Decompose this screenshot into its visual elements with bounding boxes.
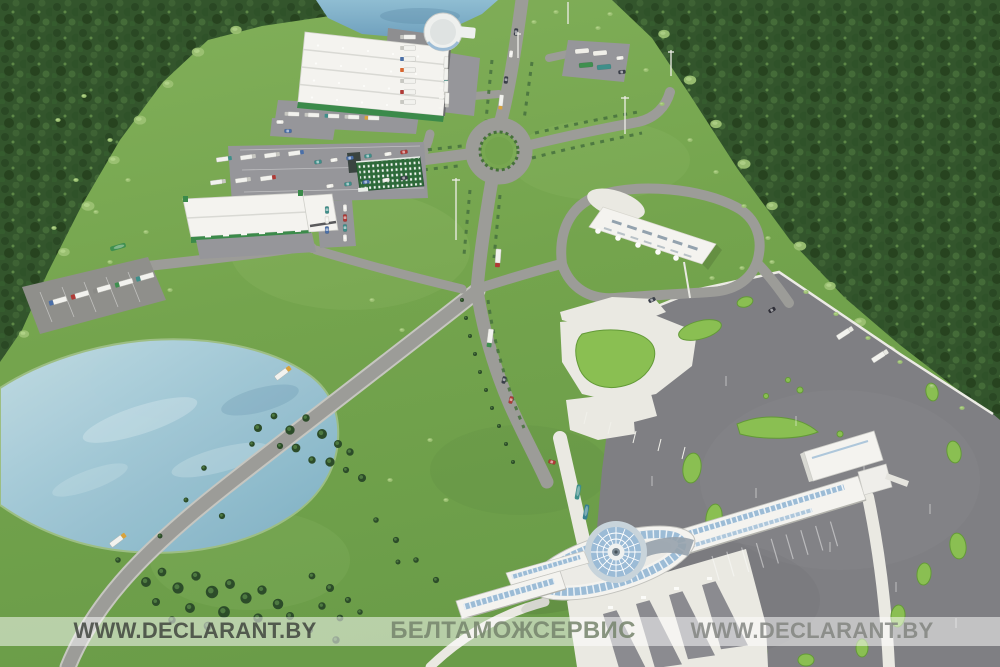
watermark-declarant-left: WWW.DECLARANT.BY xyxy=(73,617,316,643)
bus-parking-lot xyxy=(562,40,630,82)
watermark-declarant-right: WWW.DECLARANT.BY xyxy=(690,617,933,643)
logistics-complex-illustration xyxy=(0,0,1000,667)
warehouse-building xyxy=(297,32,450,122)
annex-building xyxy=(303,194,338,232)
cold-warehouse-building xyxy=(183,190,338,259)
watermark-beltamozhservice: БЕЛТАМОЖСЕРВИС xyxy=(390,616,635,644)
terminal-dome xyxy=(585,521,647,583)
aerial-render-scene: WWW.DECLARANT.BY БЕЛТАМОЖСЕРВИС WWW.DECL… xyxy=(0,0,1000,667)
watermark-bar: WWW.DECLARANT.BY БЕЛТАМОЖСЕРВИС WWW.DECL… xyxy=(0,617,1000,646)
